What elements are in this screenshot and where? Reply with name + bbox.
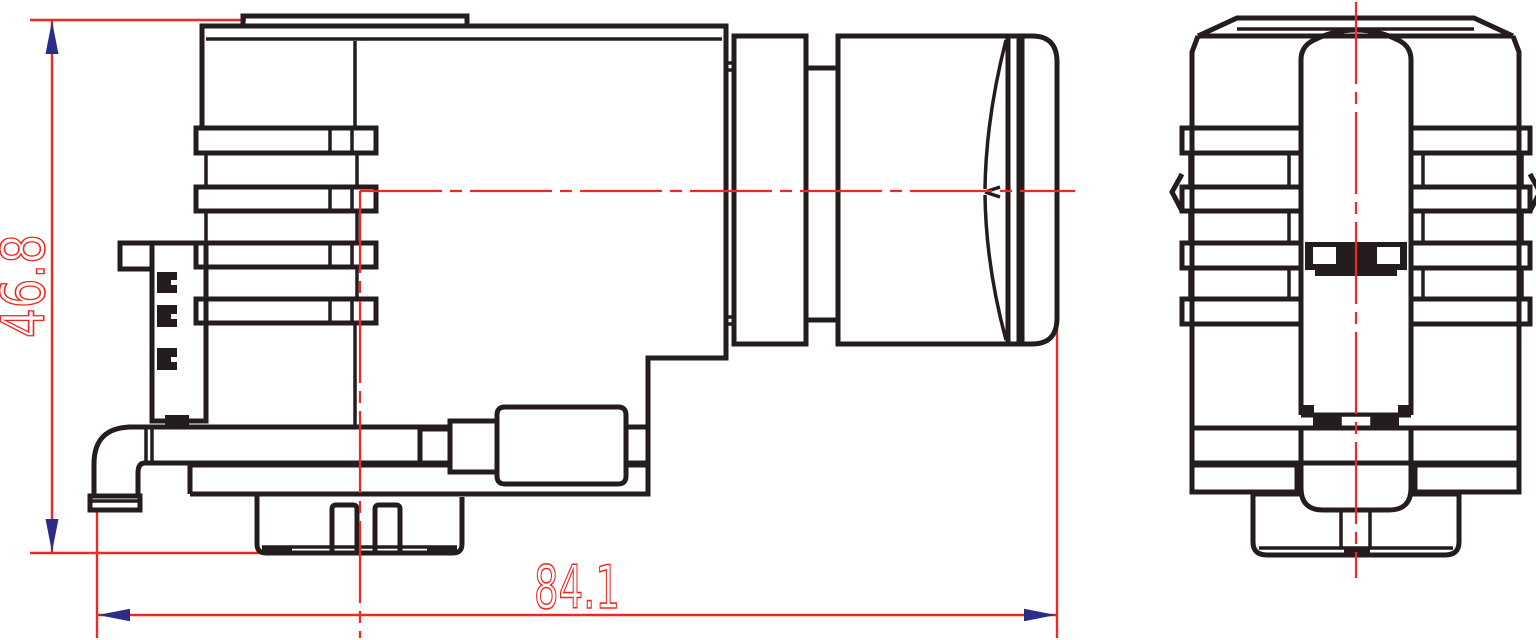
arrowhead-left-icon (98, 609, 130, 621)
front-view (1172, 18, 1536, 556)
bracket-body (152, 243, 206, 421)
groove (206, 153, 357, 187)
channel-corner-mark (1398, 405, 1411, 415)
side-view (90, 16, 1057, 555)
groove (1190, 268, 1289, 299)
channel-base-mark (1372, 415, 1399, 427)
rib (1411, 187, 1530, 211)
bracket-tab (120, 243, 152, 269)
terminal-slot (171, 280, 177, 285)
groove (1190, 211, 1289, 243)
channel-corner-mark (1301, 405, 1314, 415)
rib (1182, 187, 1301, 211)
rib (196, 187, 376, 211)
width-dimension-label: 84.1 (534, 553, 620, 623)
rib (1411, 128, 1530, 153)
rib (1182, 299, 1301, 324)
groove (1423, 268, 1522, 299)
groove (1423, 153, 1522, 187)
flange-lower-plate (1415, 465, 1519, 492)
technical-drawing-canvas: 46.8 84.1 (0, 0, 1536, 640)
groove (206, 211, 357, 243)
elbow-mouth-collar (90, 496, 140, 510)
centerlines (360, 2, 1356, 638)
clamp-window (1313, 247, 1336, 264)
rib (1182, 128, 1301, 153)
connector-dimension-drawing: 46.8 84.1 (0, 0, 1536, 640)
flange-lower-plate (1192, 465, 1297, 492)
barrel-keyways (332, 505, 400, 551)
rib (1411, 299, 1530, 324)
arrowhead-up-icon (46, 21, 59, 54)
groove (1190, 153, 1289, 187)
rib (1182, 243, 1301, 268)
spade-terminal-body (497, 407, 626, 484)
height-dimension: 46.8 (0, 20, 268, 553)
spade-terminal-step (450, 421, 497, 472)
barrel-foot (262, 546, 292, 555)
housing-top-cap (243, 16, 467, 26)
rib (196, 243, 376, 267)
terminal-slot (171, 357, 177, 362)
rib (196, 299, 376, 323)
terminal-slot (171, 314, 177, 319)
barrel-foot (427, 546, 457, 555)
rib-dividers (330, 128, 352, 323)
arrowhead-down-icon (46, 519, 59, 552)
bracket-legs (146, 427, 152, 463)
gland-neck (806, 68, 838, 320)
groove (206, 267, 357, 299)
height-dimension-label: 46.8 (0, 234, 59, 338)
spade-terminal-tip (420, 429, 450, 463)
clamp-window (1377, 247, 1400, 264)
rib (196, 128, 376, 153)
arrowhead-right-icon (1024, 609, 1056, 621)
channel-base-mark (1313, 415, 1340, 427)
rib (1411, 243, 1530, 268)
elbow-conduit (94, 427, 150, 496)
groove (1423, 211, 1522, 243)
